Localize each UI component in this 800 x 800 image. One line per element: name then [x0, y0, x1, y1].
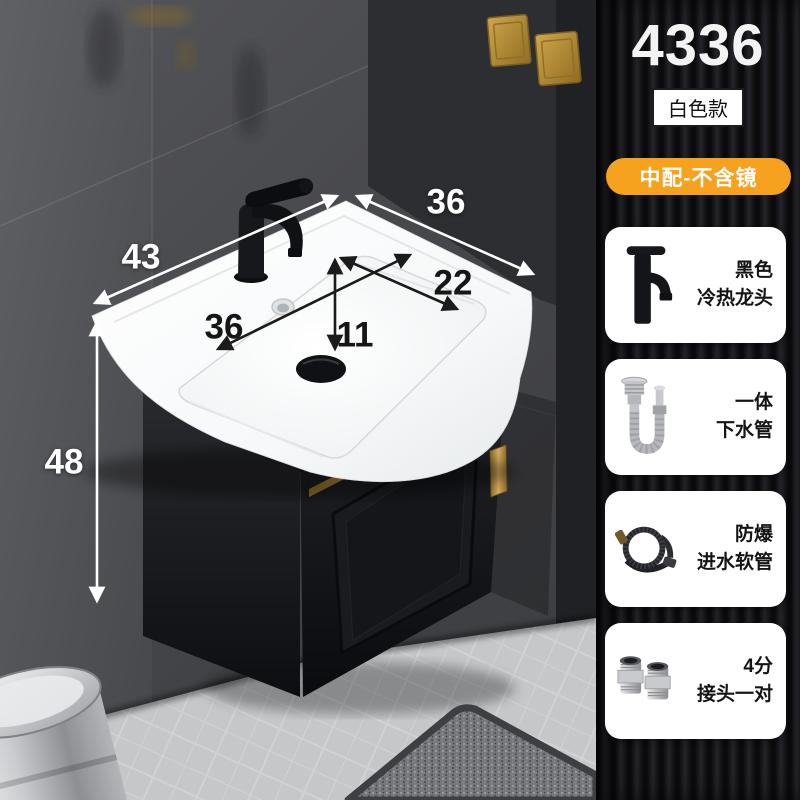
accessory-line2: 进水软管: [681, 549, 773, 577]
accessory-label: 4分 接头一对: [681, 653, 776, 708]
accessory-line1: 防爆: [681, 521, 773, 549]
product-showcase-image: 43 36 48 36 22 11 4336 白色款 中配-不含镜: [0, 0, 800, 800]
dim-depth-label: 36: [427, 185, 466, 220]
accessory-label: 防爆 进水软管: [681, 521, 776, 576]
dim-inner-diagonal-label: 22: [434, 266, 473, 301]
connector-icon: [611, 636, 681, 726]
accessory-line2: 下水管: [681, 417, 773, 445]
accessory-card-connectors: 4分 接头一对: [605, 623, 786, 739]
accessory-line2: 冷热龙头: [681, 285, 773, 313]
accessory-line2: 接头一对: [681, 681, 773, 709]
accessory-line1: 4分: [681, 653, 773, 681]
accessory-label: 黑色 冷热龙头: [681, 257, 776, 312]
accessory-line1: 黑色: [681, 257, 773, 285]
hose-icon: [611, 504, 681, 594]
drain-pipe-icon: [611, 372, 681, 462]
faucet-icon: [611, 240, 681, 330]
accessory-label: 一体 下水管: [681, 389, 776, 444]
variant-badge: 白色款: [652, 88, 744, 127]
dim-inner-width-label: 36: [205, 310, 244, 345]
accessory-list: 黑色 冷热龙头: [596, 227, 800, 739]
dim-width-label: 43: [122, 240, 161, 275]
accessory-line1: 一体: [681, 389, 773, 417]
product-info-panel: 4336 白色款 中配-不含镜 黑色 冷热龙头: [596, 0, 800, 800]
accessory-card-drain: 一体 下水管: [605, 359, 786, 475]
accessory-card-faucet: 黑色 冷热龙头: [605, 227, 786, 343]
dim-inner-depth-label: 11: [337, 318, 374, 353]
model-number: 4336: [596, 12, 800, 79]
dim-height-label: 48: [45, 445, 84, 480]
config-badge: 中配-不含镜: [606, 158, 791, 195]
accessory-card-hose: 防爆 进水软管: [605, 491, 786, 607]
